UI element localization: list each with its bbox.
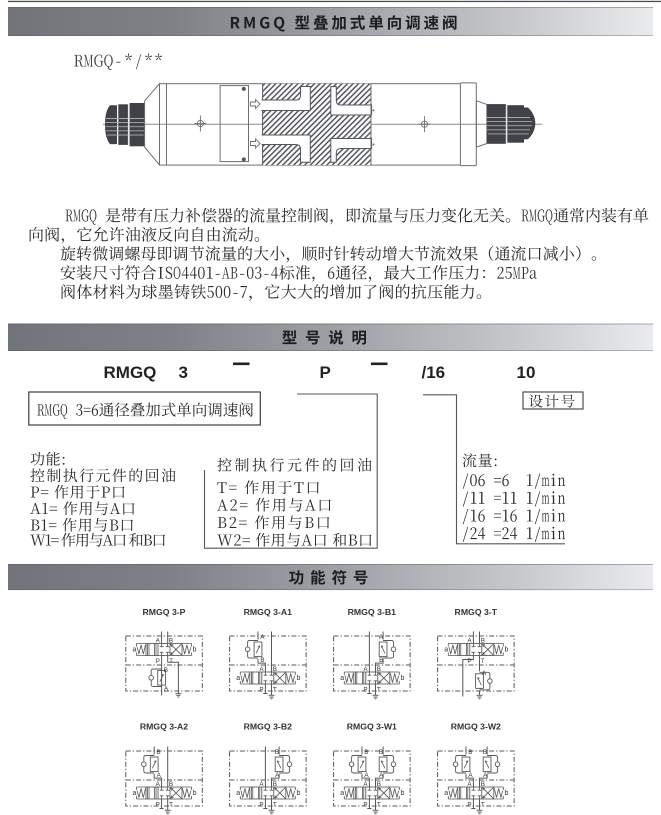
svg-text:RMGQ 3-P: RMGQ 3-P	[143, 607, 186, 617]
svg-text:B: B	[364, 749, 368, 756]
svg-text:/16: /16	[422, 363, 446, 382]
svg-text:b: b	[400, 790, 404, 797]
svg-text:RMGQ 3-B2: RMGQ 3-B2	[244, 722, 292, 732]
svg-text:b: b	[296, 790, 300, 797]
svg-text:a: a	[132, 647, 136, 654]
svg-text:b: b	[193, 647, 197, 654]
svg-text:T: T	[169, 802, 173, 809]
svg-text:B: B	[377, 666, 381, 673]
svg-text:A: A	[260, 634, 265, 641]
svg-text:P: P	[363, 687, 367, 694]
svg-text:P: P	[156, 658, 160, 665]
svg-text:A: A	[482, 670, 487, 677]
svg-text:B: B	[481, 781, 485, 788]
svg-text:T: T	[481, 658, 485, 665]
svg-text:T: T	[377, 687, 381, 694]
svg-text:B: B	[169, 638, 173, 645]
svg-text:RMGQ 3-B1: RMGQ 3-B1	[348, 607, 396, 617]
svg-text:RMGQ 3-A2: RMGQ 3-A2	[140, 722, 188, 732]
svg-text:b: b	[504, 647, 508, 654]
svg-text:a: a	[236, 675, 240, 682]
svg-text:a: a	[340, 790, 344, 797]
svg-text:b: b	[193, 790, 197, 797]
svg-text:B: B	[379, 657, 383, 664]
svg-text:P: P	[259, 802, 263, 809]
svg-text:T: T	[481, 802, 485, 809]
svg-text:B: B	[483, 749, 487, 756]
svg-text:B: B	[273, 666, 277, 673]
svg-text:P: P	[259, 687, 263, 694]
svg-text:a: a	[340, 675, 344, 682]
svg-text:b: b	[400, 675, 404, 682]
svg-text:B: B	[468, 749, 472, 756]
svg-text:T: T	[273, 802, 277, 809]
svg-text:a: a	[132, 790, 136, 797]
svg-text:T: T	[377, 802, 381, 809]
svg-text:RMGQ 3-W2: RMGQ 3-W2	[451, 722, 501, 732]
svg-text:B: B	[379, 749, 383, 756]
svg-text:P: P	[363, 802, 367, 809]
svg-text:B: B	[156, 749, 160, 756]
svg-text:3: 3	[179, 363, 188, 382]
svg-text:b: b	[296, 675, 300, 682]
svg-text:RMGQ 3-W1: RMGQ 3-W1	[347, 722, 397, 732]
svg-text:B: B	[164, 667, 168, 674]
svg-text:P: P	[320, 363, 331, 382]
svg-text:RMGQ 3-T: RMGQ 3-T	[455, 607, 498, 617]
svg-text:B: B	[481, 638, 485, 645]
svg-text:10: 10	[517, 363, 536, 382]
svg-text:a: a	[236, 790, 240, 797]
svg-text:RMGQ: RMGQ	[104, 363, 157, 382]
svg-text:B: B	[377, 781, 381, 788]
svg-text:B: B	[275, 749, 279, 756]
svg-text:a: a	[444, 647, 448, 654]
svg-text:P: P	[156, 802, 160, 809]
svg-text:B: B	[260, 657, 264, 664]
svg-text:B: B	[273, 781, 277, 788]
svg-text:a: a	[444, 790, 448, 797]
svg-text:P: P	[467, 658, 471, 665]
svg-text:B: B	[169, 781, 173, 788]
svg-text:b: b	[504, 790, 508, 797]
svg-text:T: T	[169, 658, 173, 665]
svg-text:T: T	[273, 687, 277, 694]
svg-text:RMGQ 3-A1: RMGQ 3-A1	[244, 607, 292, 617]
svg-text:P: P	[467, 802, 471, 809]
